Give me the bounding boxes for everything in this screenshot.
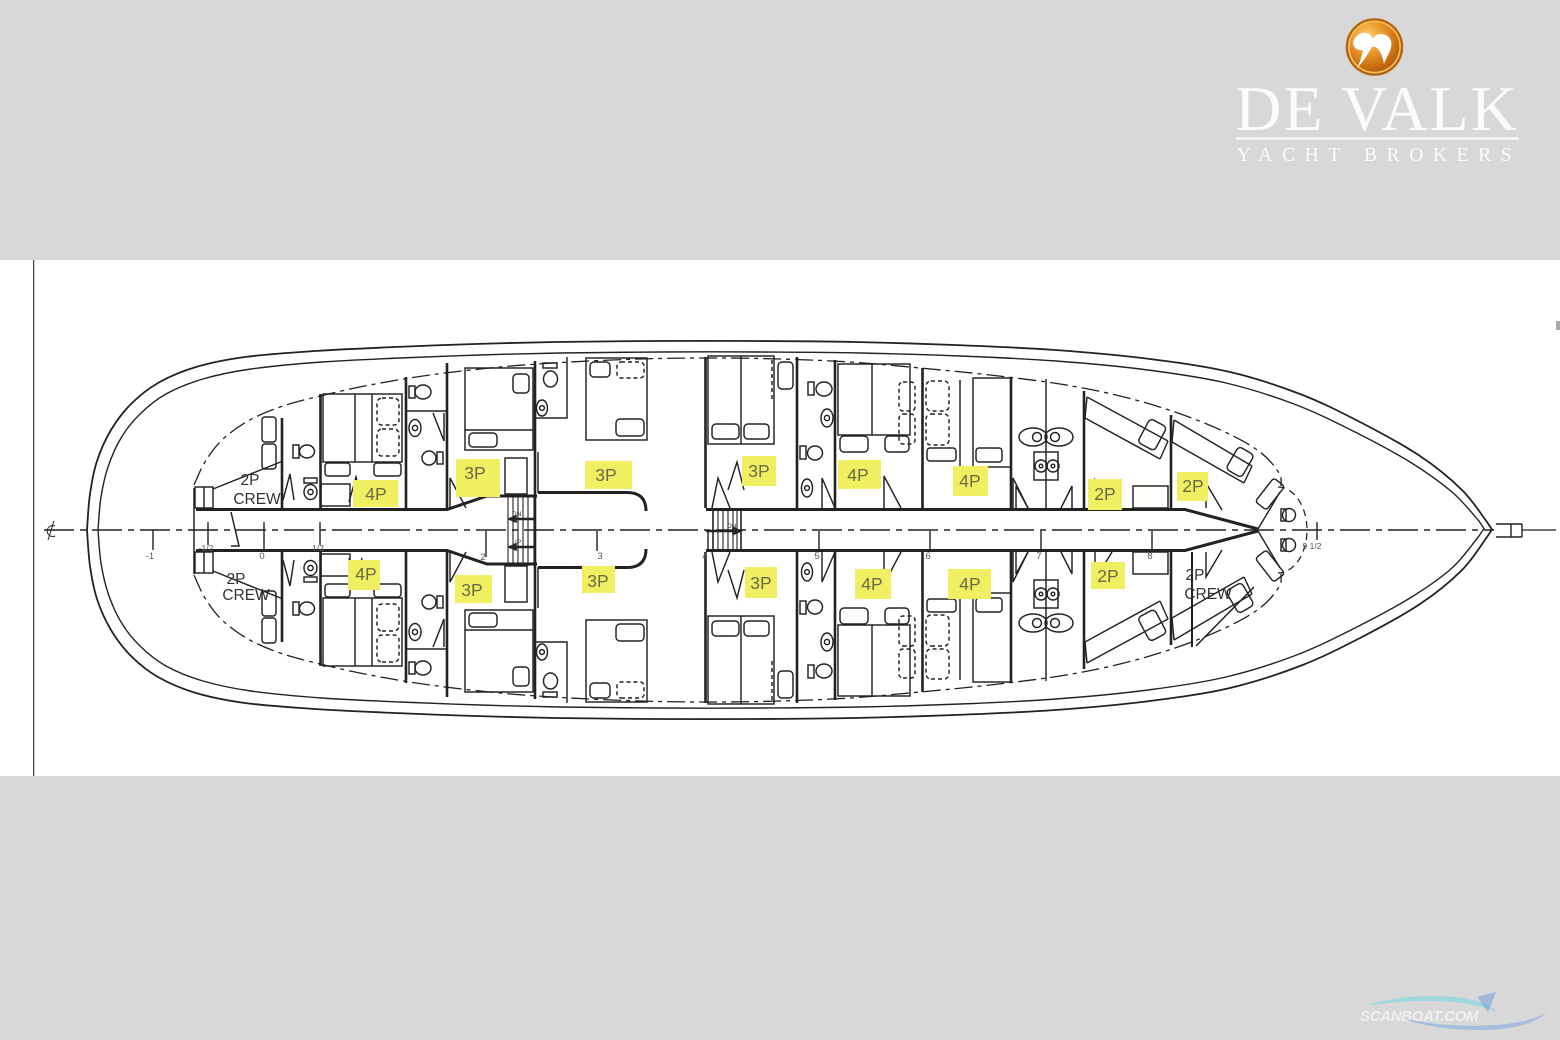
svg-text:CREW: CREW (1184, 586, 1232, 603)
svg-text:3P: 3P (587, 571, 608, 591)
svg-text:DN: DN (512, 511, 522, 518)
svg-text:DN: DN (727, 523, 737, 530)
svg-text:3P: 3P (595, 465, 616, 485)
svg-text:3: 3 (597, 551, 602, 562)
svg-text:-1: -1 (146, 551, 154, 562)
svg-text:4: 4 (702, 551, 707, 562)
svg-text:YACHT BROKERS: YACHT BROKERS (1237, 145, 1521, 166)
svg-text:9 1/2: 9 1/2 (1303, 541, 1322, 551)
svg-text:6: 6 (925, 551, 930, 562)
svg-text:5: 5 (814, 551, 819, 562)
svg-text:4P: 4P (959, 574, 980, 594)
svg-text:4P: 4P (355, 564, 376, 584)
svg-text:-1/2: -1/2 (199, 543, 214, 553)
svg-text:2P: 2P (241, 472, 260, 489)
svg-text:4P: 4P (861, 574, 882, 594)
svg-text:2P: 2P (1182, 476, 1203, 496)
svg-text:8: 8 (1147, 551, 1152, 562)
svg-text:2: 2 (480, 552, 485, 563)
svg-text:4P: 4P (847, 465, 868, 485)
svg-text:CREW: CREW (233, 491, 281, 508)
svg-text:2P: 2P (227, 571, 246, 588)
svg-text:DE VALK: DE VALK (1235, 73, 1519, 144)
svg-text:3P: 3P (461, 580, 482, 600)
svg-text:4P: 4P (365, 484, 386, 504)
svg-text:3P: 3P (464, 463, 485, 483)
svg-text:3P: 3P (750, 573, 771, 593)
svg-text:0: 0 (259, 551, 264, 562)
svg-text:2P: 2P (1094, 484, 1115, 504)
svg-text:UP: UP (512, 539, 521, 546)
svg-text:CREW: CREW (222, 587, 270, 604)
svg-text:3P: 3P (748, 461, 769, 481)
svg-text:2P: 2P (1186, 567, 1205, 584)
svg-text:4P: 4P (959, 471, 980, 491)
svg-text:2P: 2P (1097, 566, 1118, 586)
svg-text:1/2: 1/2 (312, 543, 324, 553)
svg-text:7: 7 (1036, 551, 1041, 562)
